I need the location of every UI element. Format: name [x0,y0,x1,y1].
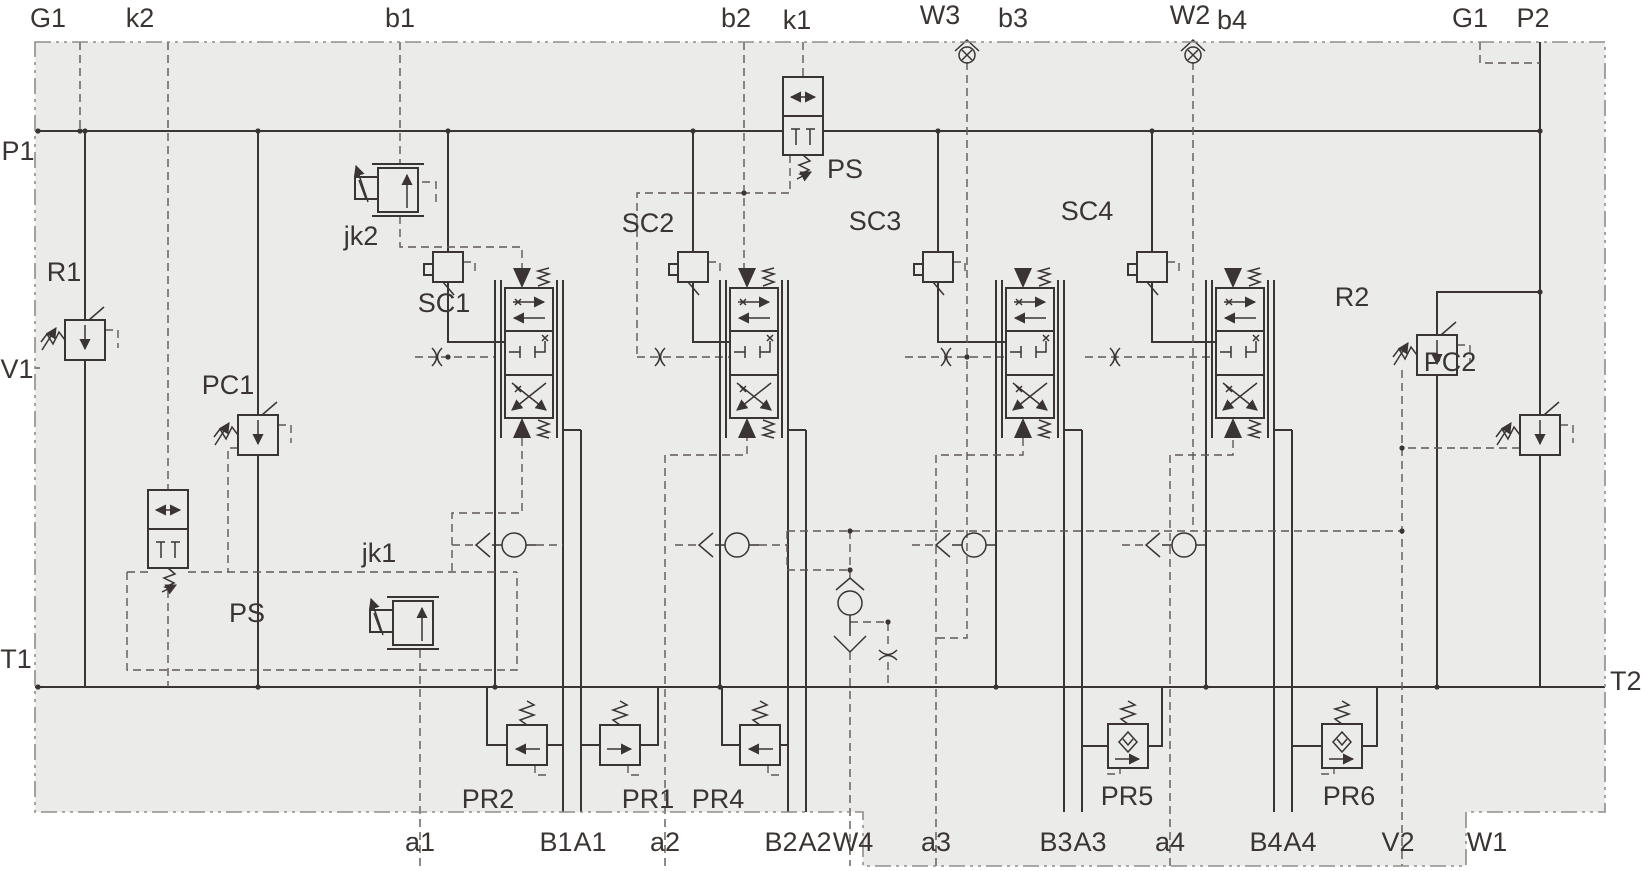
port-label-A2: A2 [798,827,831,857]
port-label-k2: k2 [126,3,155,33]
label-PR6: PR6 [1323,781,1376,811]
port-label-k1: k1 [783,5,812,35]
port-label-b3: b3 [998,3,1028,33]
label-PS-bottom: PS [229,598,265,628]
label-SC2: SC2 [622,208,675,238]
label-PC1: PC1 [202,370,255,400]
port-label-W1: W1 [1467,827,1508,857]
label-SC3: SC3 [849,206,902,236]
label-PS-top: PS [827,154,863,184]
directional-valve-section3 [996,268,1064,438]
label-R1: R1 [47,257,82,287]
port-label-B4: B4 [1249,827,1282,857]
port-labels-top: G1 k2 b1 b2 k1 W3 b3 W2 b4 G1 P2 [30,0,1550,35]
label-SC1: SC1 [418,288,471,318]
port-label-A1: A1 [573,827,606,857]
label-SC4: SC4 [1061,196,1114,226]
hydraulic-schematic: G1 k2 b1 b2 k1 W3 b3 W2 b4 G1 P2 P1 V1 T… [0,0,1643,871]
label-PR1: PR1 [622,784,675,814]
port-label-W4: W4 [833,827,874,857]
port-label-b1: b1 [385,3,415,33]
label-PR4: PR4 [692,784,745,814]
label-jk2: jk2 [343,221,379,251]
port-label-B3: B3 [1039,827,1072,857]
label-PC2: PC2 [1424,347,1477,377]
port-label-W2: W2 [1170,0,1211,30]
port-labels-left: P1 V1 T1 [0,136,34,674]
port-label-V2: V2 [1381,827,1414,857]
label-PR2: PR2 [462,784,515,814]
port-label-B2: B2 [764,827,797,857]
directional-valve-section2 [720,268,788,438]
port-label-P2: P2 [1516,3,1549,33]
port-label-A4: A4 [1283,827,1316,857]
port-label-G1-top-right: G1 [1452,3,1488,33]
port-labels-right: T2 [1610,666,1642,696]
port-label-a3: a3 [921,827,951,857]
port-label-G1-top-left: G1 [30,3,66,33]
port-label-a4: a4 [1155,827,1185,857]
schematic-page: G1 k2 b1 b2 k1 W3 b3 W2 b4 G1 P2 P1 V1 T… [0,0,1643,871]
port-label-b4: b4 [1217,5,1247,35]
directional-valve-section1 [495,268,563,438]
label-PR5: PR5 [1101,781,1154,811]
port-label-B1: B1 [539,827,572,857]
port-label-P1: P1 [1,136,34,166]
port-label-T1: T1 [0,644,32,674]
port-label-W3: W3 [920,0,961,30]
port-label-a1: a1 [405,827,435,857]
port-label-V1: V1 [0,354,33,384]
directional-valve-section4 [1206,268,1274,438]
port-label-b2: b2 [721,3,751,33]
port-label-T2: T2 [1610,666,1642,696]
port-label-a2: a2 [650,827,680,857]
port-label-A3: A3 [1073,827,1106,857]
label-jk1: jk1 [361,538,397,568]
label-R2: R2 [1335,282,1370,312]
